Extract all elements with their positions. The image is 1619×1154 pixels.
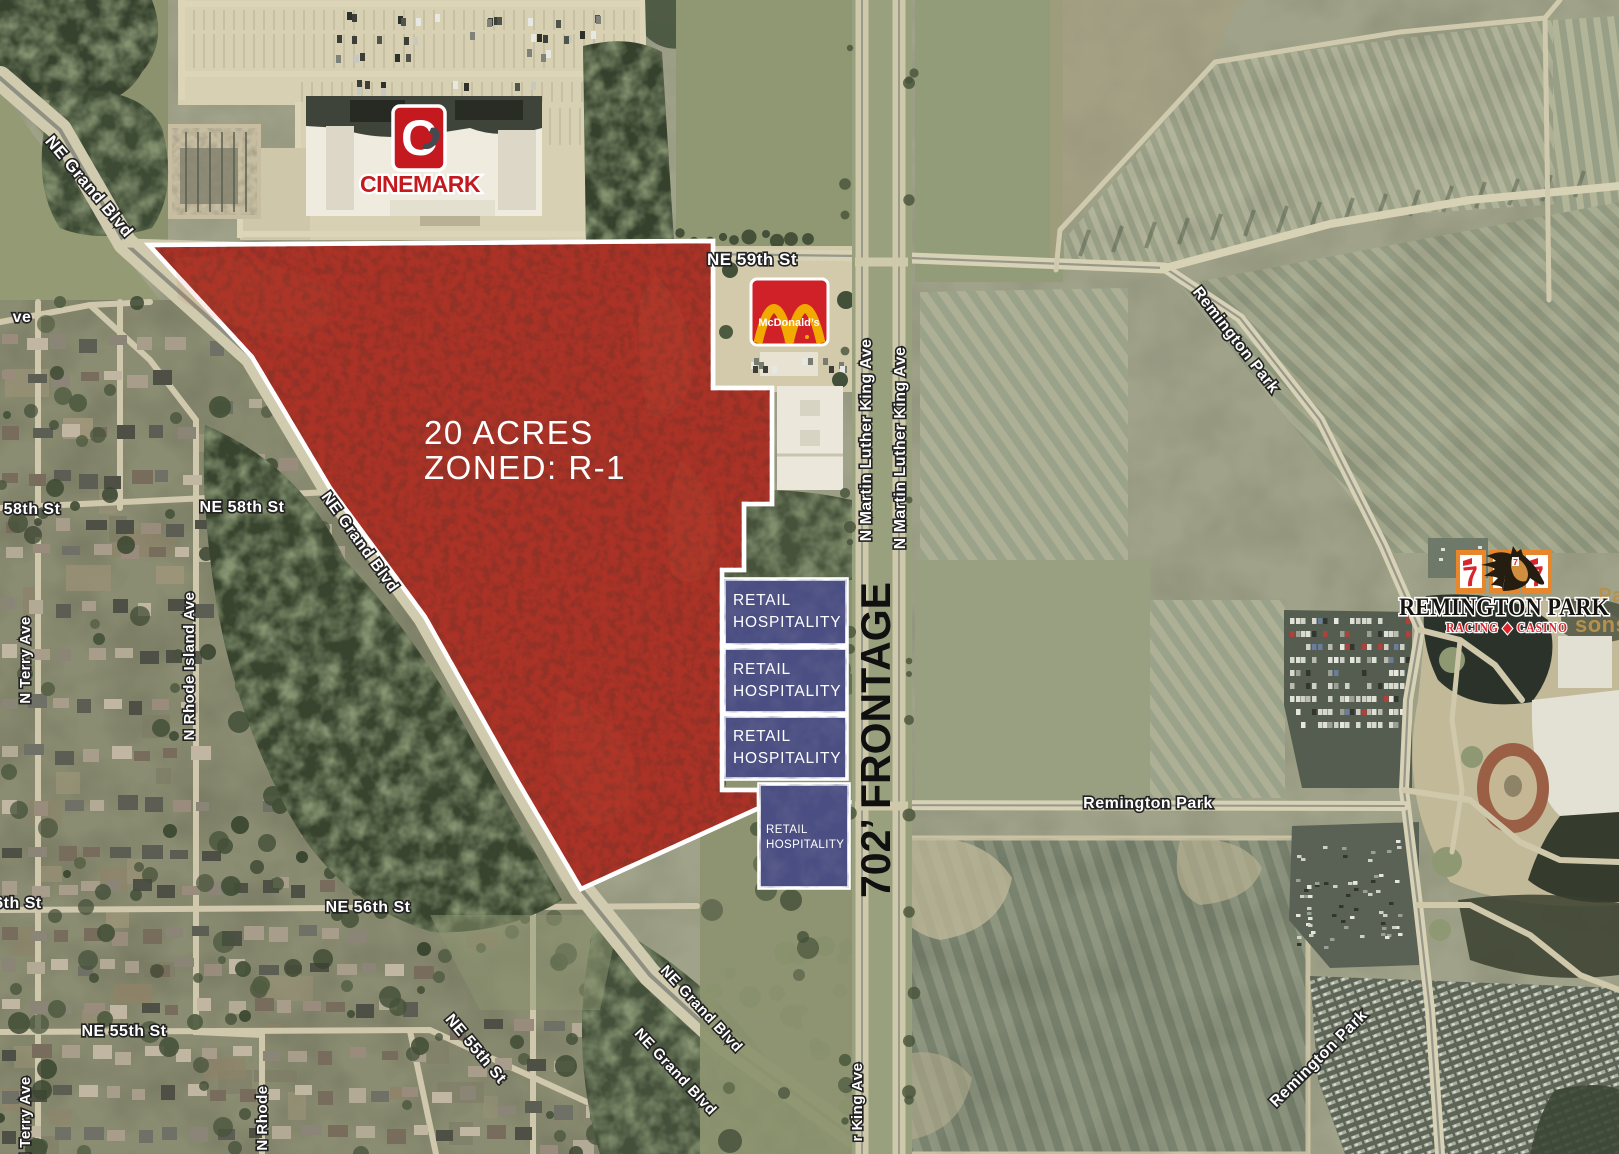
svg-text:McDonald’s: McDonald’s [758, 317, 819, 329]
svg-text:HOSPITALITY: HOSPITALITY [766, 839, 844, 851]
svg-text:NE 55th St: NE 55th St [81, 1023, 166, 1040]
svg-text:20 ACRES: 20 ACRES [424, 414, 594, 451]
svg-text:CINEMARK: CINEMARK [360, 171, 481, 197]
svg-text:NE 59th St: NE 59th St [707, 250, 797, 269]
svg-text:6th St: 6th St [0, 895, 42, 912]
svg-text:RETAIL: RETAIL [733, 728, 791, 745]
svg-text:HOSPITALITY: HOSPITALITY [733, 750, 841, 767]
svg-text:ZONED: R-1: ZONED: R-1 [424, 449, 626, 486]
svg-text:RETAIL: RETAIL [733, 661, 791, 678]
svg-text:N Martin Luther King Ave: N Martin Luther King Ave [858, 339, 875, 542]
svg-text:N Martin Luther King Ave: N Martin Luther King Ave [892, 347, 909, 550]
svg-text:NE 56th St: NE 56th St [325, 899, 410, 916]
svg-text:N Terry Ave: N Terry Ave [17, 1076, 34, 1154]
svg-text:HOSPITALITY: HOSPITALITY [733, 683, 841, 700]
svg-text:RACING ◆ CASINO: RACING ◆ CASINO [1446, 620, 1568, 635]
svg-text:r King Ave: r King Ave [849, 1063, 866, 1142]
svg-text:702’ FRONTAGE: 702’ FRONTAGE [852, 582, 899, 898]
svg-text:HOSPITALITY: HOSPITALITY [733, 614, 841, 631]
svg-text:NE 58th St: NE 58th St [199, 499, 284, 516]
svg-text:REMINGTON PARK: REMINGTON PARK [1399, 594, 1609, 621]
svg-text:RETAIL: RETAIL [766, 824, 808, 836]
svg-text:58th St: 58th St [4, 501, 61, 518]
svg-text:N Rhode Island Ave: N Rhode Island Ave [181, 592, 198, 741]
svg-text:N Rhode: N Rhode [254, 1085, 271, 1150]
svg-text:7: 7 [1513, 557, 1518, 567]
svg-text:C: C [401, 110, 437, 166]
svg-text:RETAIL: RETAIL [733, 592, 791, 609]
svg-text:Remington Park: Remington Park [1083, 795, 1213, 812]
svg-text:ve: ve [13, 309, 32, 326]
svg-text:N Terry Ave: N Terry Ave [17, 616, 34, 703]
